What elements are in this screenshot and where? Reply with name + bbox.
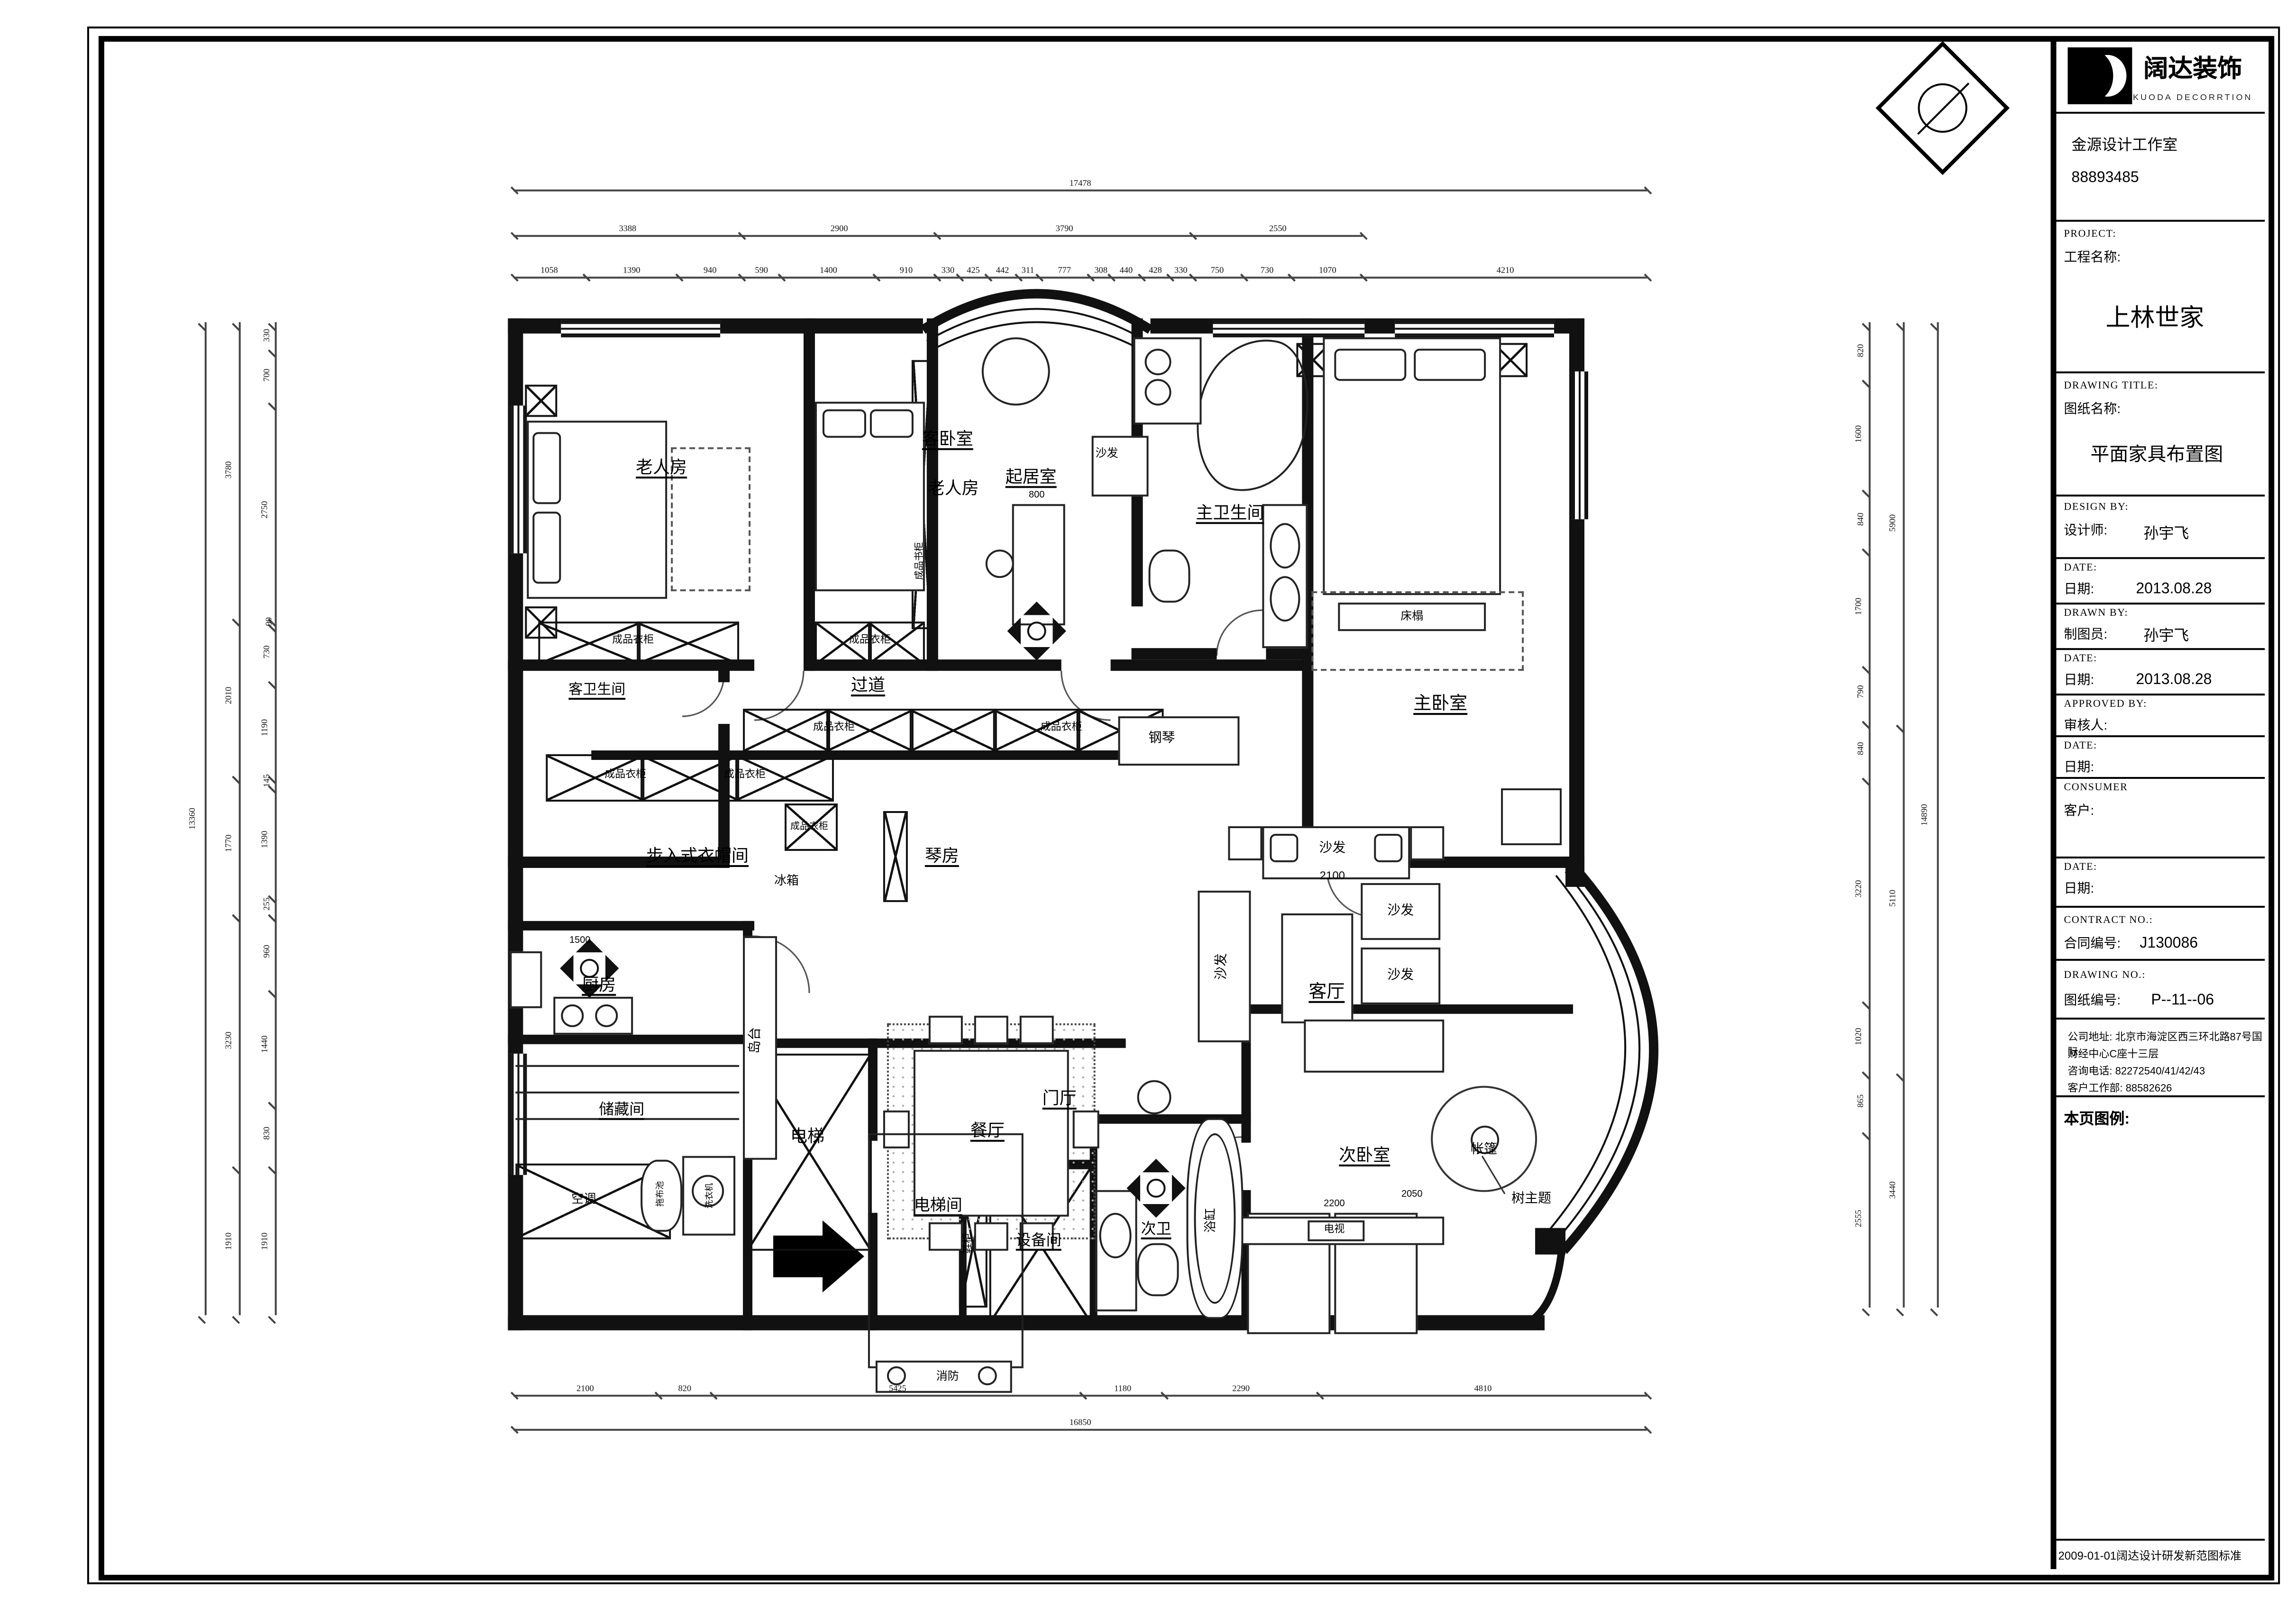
- label-elevator: 电梯: [790, 1129, 824, 1146]
- label-tv: 电视: [1324, 1226, 1345, 1237]
- dim-line: [239, 913, 241, 1166]
- dim-value: 425: [967, 265, 980, 275]
- footer-note: 2009-01-01阔达设计研发新范图标准: [2058, 1546, 2241, 1563]
- label-elder-cab: 成品衣柜: [612, 637, 654, 648]
- dim-line: [1243, 277, 1292, 279]
- laundry-counter: [1134, 338, 1202, 425]
- pillow: [870, 409, 914, 438]
- title-block-divider: [2056, 959, 2265, 961]
- dim-line: [513, 277, 585, 279]
- dim-value: 840: [1856, 742, 1865, 756]
- dim-value: 442: [996, 265, 1009, 275]
- dim-line: [1319, 1395, 1647, 1397]
- design-by-en: DESIGN BY:: [2064, 502, 2129, 513]
- label-dim-1500: 1500: [569, 937, 590, 947]
- dim-value: 1190: [260, 719, 269, 736]
- label-master-bath: 主卫生间: [1196, 505, 1264, 522]
- dim-value: 1600: [1853, 426, 1863, 443]
- date-cn: 日期:: [2064, 758, 2094, 777]
- dim-line: [275, 894, 277, 914]
- side-table: [1228, 826, 1262, 860]
- logo-cn: 阔达装饰: [2143, 56, 2242, 81]
- dim-value: 311: [1022, 265, 1034, 275]
- drawing-title-label-cn: 图纸名称:: [2064, 400, 2121, 419]
- label-sec-bedroom: 次卧室: [1339, 1148, 1390, 1165]
- drawing-no-en: DRAWING NO.:: [2064, 970, 2146, 982]
- plan-curves: [0, 0, 2295, 1607]
- label-corridor-cab1: 成品衣柜: [813, 724, 855, 735]
- wall: [508, 921, 754, 931]
- dim-value: 1058: [540, 265, 558, 275]
- dim-line: [1291, 277, 1363, 279]
- label-bathtub: 浴缸: [1207, 1208, 1219, 1233]
- coffee-table: [1281, 913, 1353, 1023]
- dim-line: [1869, 1001, 1871, 1071]
- pillow: [1414, 349, 1486, 381]
- dim-value: 13360: [187, 808, 197, 830]
- pillow: [532, 432, 561, 504]
- armchair: [1501, 788, 1562, 845]
- label-foyer: 门厅: [1043, 1091, 1077, 1108]
- wall: [508, 1035, 750, 1044]
- label-closet-cab1: 成品衣柜: [604, 772, 646, 782]
- company-address: 财经中心C座十三层: [2067, 1046, 2159, 1061]
- dim-value: 2100: [576, 1383, 594, 1393]
- dim-value: 2010: [223, 687, 233, 705]
- shelf-line: [515, 1092, 739, 1094]
- company-service: 客户工作部: 88582626: [2067, 1080, 2172, 1096]
- label-corridor: 过道: [851, 677, 885, 694]
- floor-plan: 老人房客卧室老人房起居室沙发主卫生间主卧室床榻客卫生间过道成品衣柜成品衣柜成品衣…: [0, 0, 2295, 1607]
- legend-label: 本页图例:: [2064, 1109, 2130, 1130]
- dim-line: [1090, 277, 1111, 279]
- label-washer: 洗衣机: [706, 1183, 715, 1209]
- dim-value: 1910: [223, 1232, 233, 1249]
- label-sofa-left: 沙发: [1216, 953, 1229, 980]
- date-cn: 日期:: [2064, 580, 2094, 599]
- dim-value: 960: [262, 945, 271, 958]
- dim-value: 330: [262, 329, 271, 342]
- dim-value: 910: [900, 265, 913, 275]
- title-block-divider: [2056, 857, 2265, 858]
- dim-value: 1910: [259, 1232, 269, 1250]
- date-en: DATE:: [2064, 862, 2097, 874]
- dim-line: [713, 1395, 1082, 1397]
- contract-no: J130086: [2140, 934, 2198, 951]
- bay-window-arc: [923, 294, 1151, 330]
- title-block-divider: [2056, 220, 2265, 222]
- dim-value: 428: [1149, 265, 1162, 275]
- chair: [1073, 1111, 1099, 1149]
- date-en: DATE:: [2064, 654, 2097, 665]
- window: [1213, 320, 1364, 338]
- nightstand-xbox: [525, 385, 557, 417]
- label-elevator-hall: 电梯间: [914, 1197, 962, 1214]
- dim-value: 1390: [623, 265, 640, 275]
- label-sitting-sofa: 沙发: [1096, 449, 1118, 460]
- dim-line: [1869, 490, 1871, 548]
- date-value: 2013.08.28: [2136, 671, 2212, 688]
- pillow: [823, 409, 866, 438]
- title-block-divider: [2056, 648, 2265, 650]
- logo-en: KUODA DECORRTION: [2133, 94, 2253, 103]
- dim-value: 1440: [259, 1036, 269, 1054]
- label-sofa-top: 沙发: [1319, 842, 1345, 856]
- dim-line: [937, 235, 1192, 237]
- wall: [1266, 648, 1308, 659]
- label-sofa-r2: 沙发: [1387, 969, 1414, 983]
- dim-line: [1869, 720, 1871, 777]
- dim-value: 2900: [831, 224, 848, 233]
- label-mop-sink: 拖布池: [657, 1181, 666, 1207]
- label-fridge: 冰箱: [774, 877, 799, 889]
- dim-value: 4810: [1474, 1383, 1492, 1393]
- wardrobe-xbox: [910, 709, 997, 752]
- dim-line: [678, 277, 741, 279]
- dim-value: 1070: [1319, 265, 1336, 275]
- grand-piano: [1118, 716, 1240, 766]
- dim-value: 1180: [1114, 1383, 1131, 1393]
- dim-line: [1141, 277, 1170, 279]
- label-dim-800: 800: [1029, 492, 1044, 501]
- dim-value: 590: [755, 265, 768, 275]
- dim-value: 790: [1856, 686, 1865, 699]
- label-dining: 餐厅: [970, 1123, 1005, 1140]
- date-cn: 日期:: [2064, 879, 2094, 898]
- company-phone: 咨询电话: 82272540/41/42/43: [2067, 1063, 2205, 1078]
- side-table: [1410, 826, 1444, 860]
- pillow: [532, 511, 561, 584]
- chair: [974, 1016, 1008, 1044]
- title-block-divider: [2056, 557, 2265, 559]
- consumer-cn: 客户:: [2064, 802, 2094, 821]
- title-block-divider: [2056, 603, 2265, 604]
- burner: [595, 1004, 618, 1027]
- title-block-divider: [2056, 1539, 2265, 1541]
- label-master-bedroom: 主卧室: [1413, 696, 1467, 714]
- dim-value: 308: [1094, 265, 1107, 275]
- dim-line: [275, 785, 277, 894]
- sink: [1099, 1213, 1132, 1258]
- wall: [1132, 648, 1217, 659]
- title-block-divider: [2056, 1018, 2265, 1020]
- washer-drum: [1145, 349, 1171, 375]
- piano-cabinet-xbox: [883, 811, 908, 902]
- dim-line: [657, 1395, 713, 1397]
- studio-phone: 88893485: [2071, 169, 2139, 186]
- dim-value: 330: [942, 265, 955, 275]
- project-label-en: PROJECT:: [2064, 229, 2116, 241]
- dim-value: 2290: [1232, 1383, 1250, 1393]
- label-sec-bath: 次卫: [1141, 1222, 1171, 1237]
- window: [510, 405, 527, 553]
- dim-value: 750: [1211, 265, 1224, 275]
- dim-value: 5900: [1887, 515, 1897, 532]
- drawn-by-cn: 制图员:: [2064, 625, 2107, 644]
- dim-line: [275, 774, 277, 785]
- dim-value: 90: [264, 616, 273, 625]
- dim-line: [741, 235, 937, 237]
- dim-value: 730: [262, 646, 271, 659]
- dim-line: [1192, 235, 1363, 237]
- dim-value: 940: [704, 265, 717, 275]
- dim-line: [1163, 1395, 1319, 1397]
- chair: [929, 1016, 963, 1044]
- pillow: [1374, 834, 1402, 862]
- studio-name: 金源设计工作室: [2071, 135, 2177, 155]
- label-guest-room-1: 客卧室: [922, 431, 973, 448]
- dim-line: [937, 277, 959, 279]
- dim-value: 5425: [889, 1383, 906, 1393]
- dim-value: 865: [1856, 1095, 1865, 1108]
- dim-value: 1020: [1853, 1027, 1863, 1045]
- label-elder-room: 老人房: [636, 459, 687, 476]
- consumer-en: CONSUMER: [2064, 783, 2128, 794]
- drawn-by-en: DRAWN BY:: [2064, 608, 2128, 620]
- project-label-cn: 工程名称:: [2064, 248, 2121, 267]
- title-block: 阔达装饰 KUODA DECORRTION 金源设计工作室88893485PRO…: [2050, 36, 2269, 1569]
- date-value: 2013.08.28: [2136, 580, 2212, 597]
- elevator-hall-outline: [868, 1133, 1024, 1369]
- dim-line: [1192, 277, 1242, 279]
- label-fire: 消防: [936, 1372, 959, 1383]
- pillow: [1270, 834, 1298, 862]
- toilet: [1149, 549, 1190, 603]
- label-dim-2200: 2200: [1324, 1201, 1345, 1210]
- sofa: [1092, 436, 1149, 496]
- sink: [1270, 576, 1300, 621]
- drafter: 孙宇飞: [2143, 625, 2189, 646]
- round-table: [982, 338, 1050, 406]
- contract-cn: 合同编号:: [2064, 934, 2121, 953]
- dim-line: [1082, 1395, 1163, 1397]
- label-guest-room-2: 老人房: [928, 480, 979, 497]
- dim-line: [239, 775, 241, 913]
- label-sofa-dim: 2100: [1320, 872, 1345, 883]
- label-tent: 帐篷: [1471, 1144, 1497, 1157]
- dim-line: [513, 190, 1647, 192]
- title-block-divider: [2056, 112, 2265, 114]
- drawing-no: P--11--06: [2151, 991, 2214, 1008]
- dim-line: [513, 1395, 657, 1397]
- wall: [1111, 659, 1308, 671]
- drawing-no-cn: 图纸编号:: [2064, 991, 2121, 1010]
- dim-value: 330: [1174, 265, 1188, 275]
- dim-line: [275, 1166, 277, 1315]
- dim-value: 145: [262, 773, 271, 786]
- door-arc: [682, 675, 724, 716]
- contract-en: CONTRACT NO.:: [2064, 915, 2153, 927]
- shelf-line: [515, 1065, 739, 1067]
- wall: [1565, 857, 1584, 887]
- drawing-sheet: 老人房客卧室老人房起居室沙发主卫生间主卧室床榻客卫生间过道成品衣柜成品衣柜成品衣…: [0, 0, 2295, 1607]
- dim-value: 840: [1856, 512, 1865, 525]
- dim-value: 3780: [223, 461, 233, 479]
- window: [1571, 372, 1588, 520]
- dim-value: 700: [262, 369, 271, 382]
- window: [561, 320, 720, 338]
- dim-value: 3230: [223, 1031, 233, 1049]
- label-sofa-r1: 沙发: [1387, 905, 1414, 918]
- dim-line: [585, 277, 678, 279]
- toilet: [1137, 1243, 1179, 1296]
- label-corridor-cab2: 成品衣柜: [1041, 724, 1082, 735]
- dim-line: [513, 235, 741, 237]
- dim-line: [1170, 277, 1192, 279]
- dim-value: 1400: [820, 265, 837, 275]
- date-en: DATE:: [2064, 741, 2097, 752]
- dim-line: [1869, 322, 1871, 379]
- dim-line: [1111, 277, 1141, 279]
- title-block-divider: [2056, 1096, 2265, 1097]
- dim-value: 3220: [1853, 880, 1863, 898]
- title-block-divider: [2056, 735, 2265, 737]
- sink: [1270, 523, 1300, 568]
- label-bed-bench: 床榻: [1400, 612, 1423, 623]
- dim-line: [239, 322, 241, 618]
- dim-value: 820: [1856, 344, 1865, 357]
- dim-line: [275, 617, 277, 624]
- date-cn: 日期:: [2064, 671, 2094, 690]
- wall: [718, 667, 730, 682]
- dim-value: 1770: [223, 835, 233, 853]
- dim-value: 1390: [259, 831, 269, 849]
- dim-value: 16850: [1070, 1417, 1091, 1427]
- dim-value: 777: [1058, 265, 1071, 275]
- dim-line: [1869, 1071, 1871, 1131]
- label-closet-cab2: 成品衣柜: [724, 772, 766, 782]
- balcony-curve-glass: [1554, 872, 1639, 1243]
- dim-value: 4210: [1497, 265, 1514, 275]
- kitchen-sink: [510, 951, 542, 1008]
- dim-line: [239, 1166, 241, 1315]
- label-storage: 储藏间: [599, 1103, 644, 1118]
- label-walkin-closet: 步入式衣帽间: [646, 848, 749, 865]
- dim-value: 2750: [259, 501, 269, 519]
- chair: [986, 549, 1014, 578]
- approved-by-cn: 审核人:: [2064, 716, 2107, 735]
- dim-line: [1937, 322, 1939, 1308]
- dim-value: 5110: [1888, 890, 1897, 907]
- dim-line: [959, 277, 988, 279]
- dim-value: 2550: [1269, 224, 1287, 233]
- wall: [1535, 1228, 1565, 1254]
- dim-line: [275, 322, 277, 348]
- project-name: 上林世家: [2105, 298, 2204, 334]
- dim-line: [275, 402, 277, 617]
- title-block-divider: [2056, 777, 2265, 779]
- label-guest-cab: 成品衣柜: [849, 637, 891, 648]
- dim-value: 440: [1120, 265, 1133, 275]
- dim-value: 17478: [1070, 178, 1091, 188]
- pillow: [1334, 349, 1406, 381]
- dim-value: 3388: [619, 224, 636, 233]
- dim-value: 3790: [1056, 224, 1073, 233]
- dim-value: 255: [262, 897, 271, 911]
- dim-line: [876, 277, 937, 279]
- hydrant: [887, 1366, 906, 1385]
- dim-line: [781, 277, 876, 279]
- title-block-divider: [2056, 494, 2265, 496]
- window: [510, 1054, 527, 1175]
- dim-line: [275, 681, 277, 774]
- designer: 孙宇飞: [2143, 523, 2189, 544]
- dim-line: [1903, 724, 1905, 1073]
- dim-line: [741, 277, 781, 279]
- chair: [1020, 1016, 1054, 1044]
- dim-line: [275, 624, 277, 681]
- dim-line: [1869, 379, 1871, 489]
- label-tree-theme: 树主题: [1511, 1193, 1551, 1206]
- label-living: 客厅: [1308, 984, 1345, 1002]
- label-piano-room: 琴房: [925, 848, 959, 865]
- date-en: DATE:: [2064, 563, 2097, 574]
- washer-drum: [1145, 379, 1171, 406]
- design-by-cn: 设计师:: [2064, 521, 2107, 540]
- dim-line: [1363, 277, 1647, 279]
- label-guest-bath: 客卫生间: [568, 683, 625, 697]
- title-block-divider: [2056, 694, 2265, 695]
- title-block-divider: [2056, 372, 2265, 374]
- dim-line: [1903, 1073, 1905, 1307]
- company-logo-icon: [2067, 47, 2132, 104]
- dim-value: 14890: [1920, 804, 1929, 826]
- dim-line: [275, 989, 277, 1101]
- dim-value: 2555: [1853, 1211, 1863, 1228]
- dim-line: [275, 1101, 277, 1166]
- approved-by-en: APPROVED BY:: [2064, 699, 2147, 711]
- dim-line: [275, 914, 277, 989]
- drawing-title: 平面家具布置图: [2090, 438, 2223, 466]
- dim-line: [1869, 1131, 1871, 1308]
- label-equipment: 设备间: [1016, 1233, 1061, 1249]
- label-closet-cab3: 成品衣柜: [790, 823, 828, 833]
- dim-line: [1869, 778, 1871, 1001]
- dim-value: 820: [678, 1383, 691, 1393]
- hydrant: [978, 1366, 997, 1385]
- burner: [561, 1004, 584, 1027]
- label-shoe-cab: 鞋柜: [965, 1233, 976, 1253]
- dim-value: 730: [1261, 265, 1274, 275]
- title-block-divider: [2056, 906, 2265, 908]
- dim-line: [988, 277, 1017, 279]
- label-kitchen: 厨房: [582, 977, 616, 994]
- label-ac: 空调: [571, 1196, 596, 1208]
- dim-line: [239, 618, 241, 775]
- dim-value: 3440: [1887, 1182, 1897, 1199]
- door-arc: [1217, 610, 1262, 656]
- desk: [1304, 1020, 1444, 1073]
- window: [1395, 320, 1554, 338]
- dim-value: 1700: [1853, 598, 1863, 615]
- dim-line: [1038, 277, 1090, 279]
- label-grand-piano: 钢琴: [1149, 732, 1175, 746]
- label-sitting-room: 起居室: [1006, 469, 1057, 486]
- drawing-title-label-en: DRAWING TITLE:: [2064, 381, 2158, 393]
- wall: [804, 319, 815, 671]
- label-island: 岛台: [750, 1027, 763, 1054]
- dim-line: [513, 1429, 1647, 1431]
- plant: [1137, 1080, 1171, 1114]
- dim-line: [205, 322, 207, 1315]
- label-bookcase: 成品书柜: [916, 542, 926, 580]
- label-dim-2050: 2050: [1401, 1191, 1422, 1201]
- dim-value: 830: [262, 1127, 271, 1141]
- shelf-line: [515, 1118, 739, 1120]
- dim-line: [1869, 548, 1871, 665]
- dim-line: [1903, 322, 1905, 725]
